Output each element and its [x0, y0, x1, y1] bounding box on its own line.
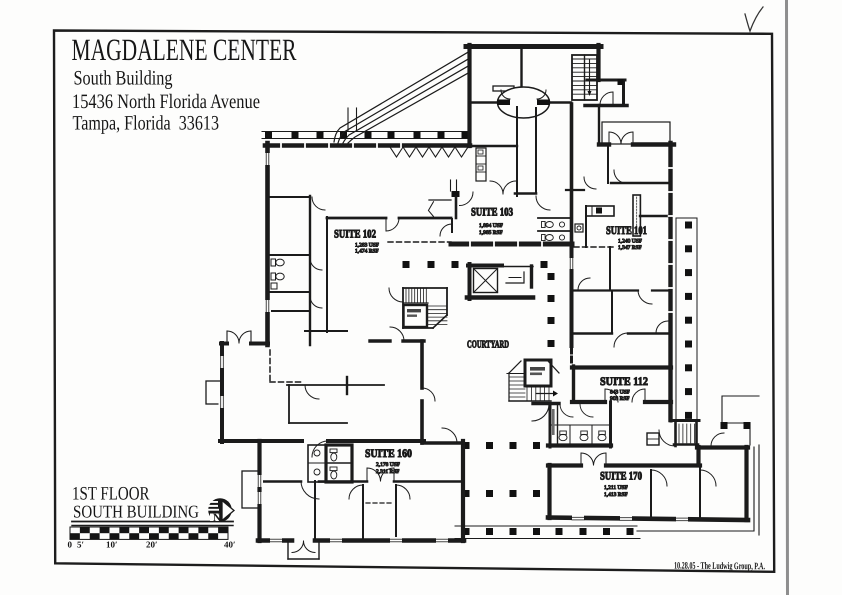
svg-text:1,474 RSF: 1,474 RSF [355, 249, 379, 255]
svg-text:1,894 USF: 1,894 USF [479, 223, 503, 229]
svg-text:SUITE 102: SUITE 102 [334, 228, 376, 240]
svg-text:SUITE 103: SUITE 103 [471, 207, 513, 219]
svg-text:2,178 USF: 2,178 USF [376, 462, 400, 468]
svg-text:COURTYARD: COURTYARD [467, 340, 509, 351]
svg-text:903 RSF: 903 RSF [610, 396, 629, 402]
svg-text:N: N [213, 512, 221, 524]
svg-text:20′: 20′ [146, 540, 158, 550]
svg-text:SUITE 160: SUITE 160 [365, 448, 412, 460]
svg-text:0: 0 [68, 540, 73, 550]
svg-text:2,311 RSF: 2,311 RSF [376, 469, 399, 475]
svg-text:SUITE 112: SUITE 112 [600, 376, 648, 388]
svg-text:10′: 10′ [106, 540, 118, 550]
svg-text:15436 North Florida Avenue: 15436 North Florida Avenue [72, 91, 260, 113]
svg-text:5′: 5′ [77, 540, 84, 550]
svg-text:843 USF: 843 USF [610, 390, 630, 396]
svg-text:South Building: South Building [74, 68, 173, 90]
svg-text:SUITE 170: SUITE 170 [600, 471, 642, 483]
svg-text:SUITE 101: SUITE 101 [606, 225, 647, 237]
svg-text:40′: 40′ [224, 540, 236, 550]
svg-text:SOUTH BUILDING: SOUTH BUILDING [73, 502, 199, 522]
svg-text:Tampa, Florida 33613: Tampa, Florida 33613 [73, 113, 220, 135]
svg-text:1,211 USF: 1,211 USF [604, 485, 628, 491]
svg-text:1,347 RSF: 1,347 RSF [618, 245, 642, 251]
svg-text:1,240 USF: 1,240 USF [618, 239, 642, 245]
svg-text:1,985 RSF: 1,985 RSF [479, 230, 503, 236]
svg-text:MAGDALENE CENTER: MAGDALENE CENTER [72, 32, 297, 67]
svg-text:1,413 RSF: 1,413 RSF [604, 492, 628, 498]
